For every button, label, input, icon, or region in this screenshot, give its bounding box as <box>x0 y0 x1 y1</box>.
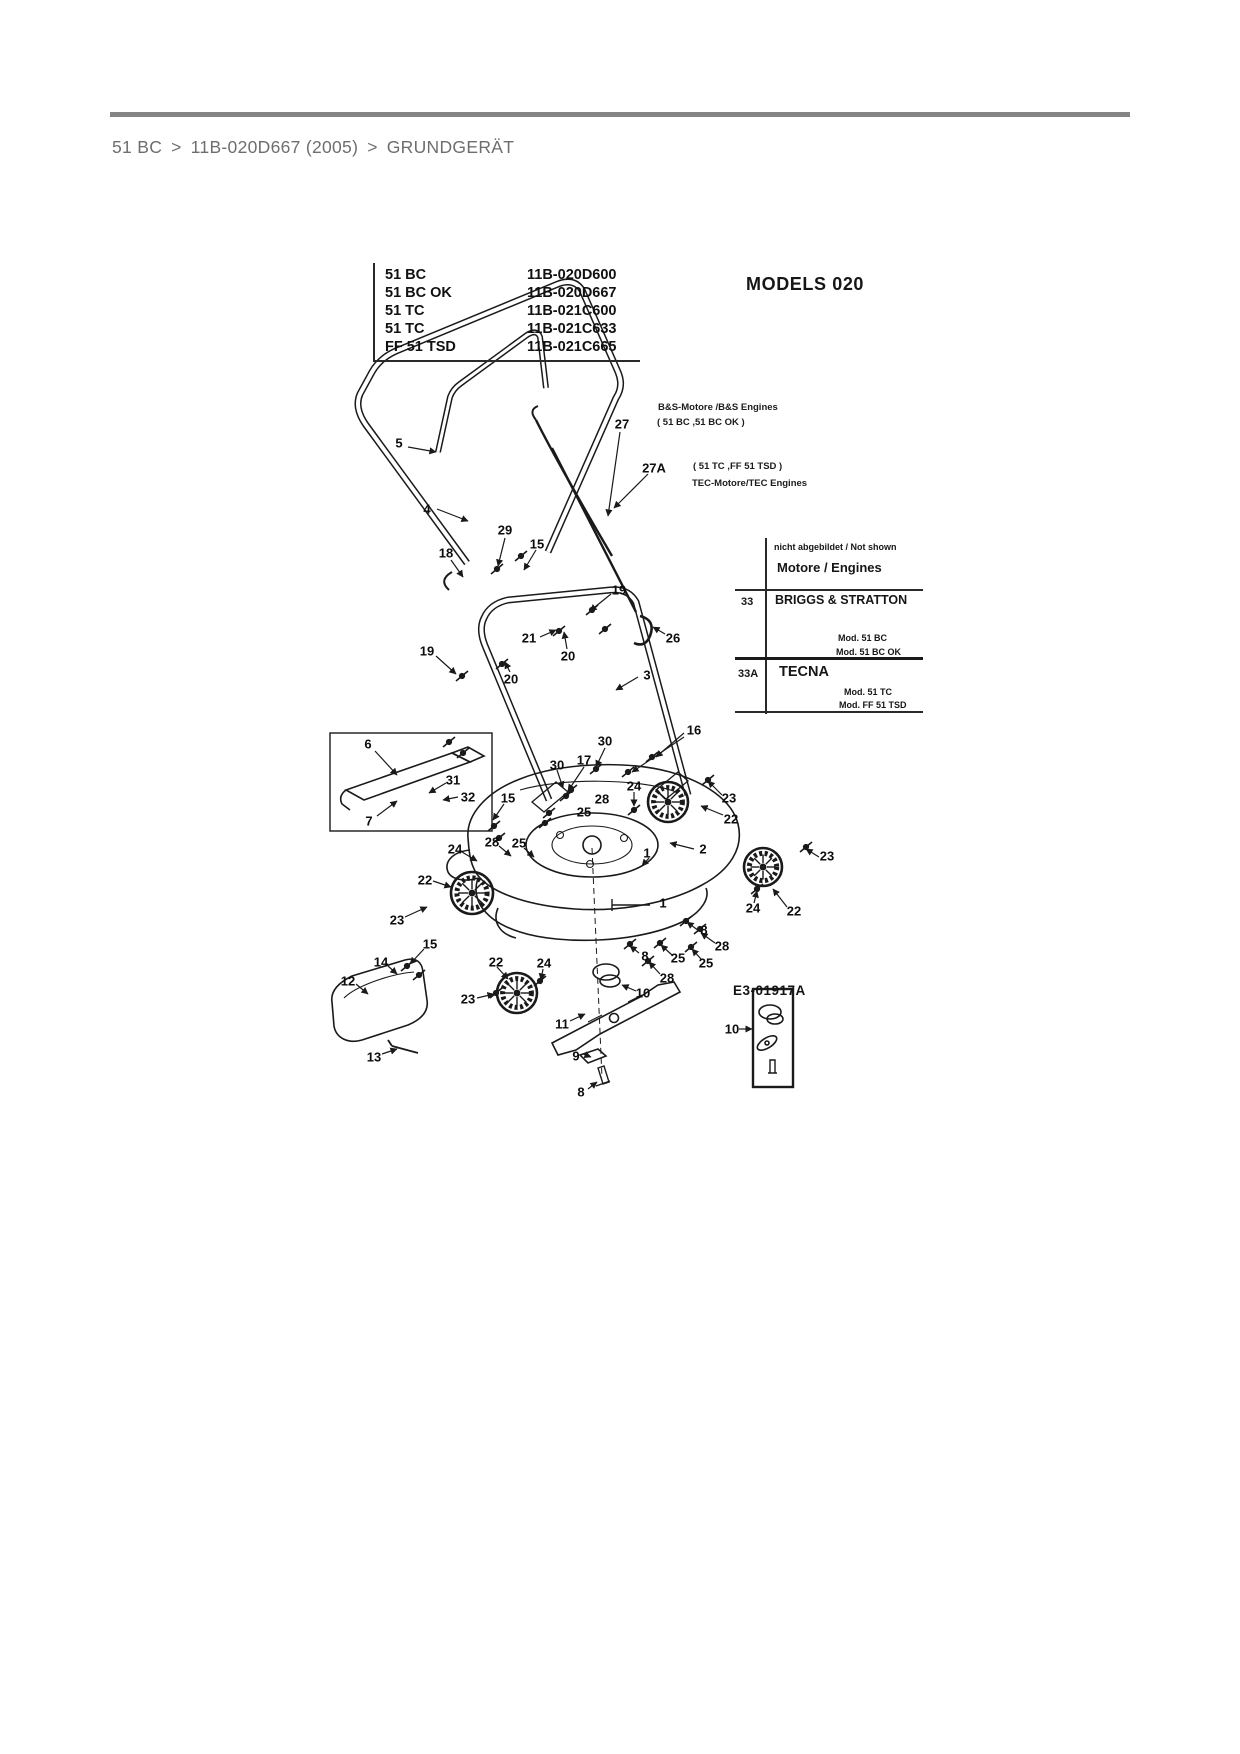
part-label-27a[interactable]: 27A <box>642 461 666 476</box>
part-label-15[interactable]: 15 <box>501 791 515 806</box>
part-label-3[interactable]: 3 <box>643 668 650 683</box>
engine-model-ff51tsd: Mod. FF 51 TSD <box>839 700 907 710</box>
part-label-5[interactable]: 5 <box>395 436 402 451</box>
engines-table: nicht abgebildet / Not shown Motore / En… <box>735 538 923 714</box>
part-label-19[interactable]: 19 <box>420 644 434 659</box>
engines-not-shown-note: nicht abgebildet / Not shown <box>774 542 897 552</box>
diagram-title: MODELS 020 <box>746 274 864 295</box>
part-label-24[interactable]: 24 <box>627 779 641 794</box>
model-name: 51 BC <box>375 266 527 284</box>
part-label-8[interactable]: 8 <box>641 949 648 964</box>
part-label-16[interactable]: 16 <box>687 723 701 738</box>
engine-ref-33a: 33A <box>738 668 758 680</box>
part-label-14[interactable]: 14 <box>374 955 388 970</box>
model-number: 11B-021C633 <box>527 320 637 338</box>
engine-note-tec-line2: TEC-Motore/TEC Engines <box>692 478 807 489</box>
part-label-23[interactable]: 23 <box>390 913 404 928</box>
part-label-1[interactable]: 1 <box>659 896 666 911</box>
part-label-25[interactable]: 25 <box>699 956 713 971</box>
engine-model-51bc: Mod. 51 BC <box>838 633 887 643</box>
part-label-21[interactable]: 21 <box>522 631 536 646</box>
part-label-25[interactable]: 25 <box>671 951 685 966</box>
model-row: 51 TC11B-021C600 <box>375 302 640 320</box>
model-name: 51 TC <box>375 302 527 320</box>
model-row: 51 BC11B-020D600 <box>375 266 640 284</box>
part-label-7[interactable]: 7 <box>365 814 372 829</box>
part-label-28[interactable]: 28 <box>660 971 674 986</box>
engine-note-bs-line1: B&S-Motore /B&S Engines <box>658 402 778 413</box>
part-label-11[interactable]: 11 <box>555 1017 569 1032</box>
engine-model-51bcok: Mod. 51 BC OK <box>836 647 901 657</box>
part-label-30[interactable]: 30 <box>598 734 612 749</box>
model-number: 11B-020D667 <box>527 284 637 302</box>
part-label-24[interactable]: 24 <box>448 842 462 857</box>
part-label-22[interactable]: 22 <box>787 904 801 919</box>
part-label-24[interactable]: 24 <box>537 956 551 971</box>
part-label-9[interactable]: 9 <box>572 1049 579 1064</box>
engines-table-rule-1 <box>735 589 923 591</box>
part-label-15[interactable]: 15 <box>530 537 544 552</box>
engine-ref-33: 33 <box>741 596 753 608</box>
part-label-31[interactable]: 31 <box>446 773 460 788</box>
part-label-8[interactable]: 8 <box>700 923 707 938</box>
part-label-19[interactable]: 19 <box>612 583 626 598</box>
part-label-6[interactable]: 6 <box>364 737 371 752</box>
part-label-20[interactable]: 20 <box>561 649 575 664</box>
part-label-10[interactable]: 10 <box>636 986 650 1001</box>
engines-table-rule-2 <box>735 657 923 660</box>
part-label-22[interactable]: 22 <box>418 873 432 888</box>
model-row: 51 TC11B-021C633 <box>375 320 640 338</box>
part-label-1[interactable]: 1 <box>643 846 650 861</box>
engine-note-tec-line1: ( 51 TC ,FF 51 TSD ) <box>693 461 782 472</box>
model-number: 11B-021C600 <box>527 302 637 320</box>
engines-table-rule-3 <box>735 711 923 713</box>
part-label-12[interactable]: 12 <box>341 974 355 989</box>
part-label-24[interactable]: 24 <box>746 901 760 916</box>
model-row: 51 BC OK11B-020D667 <box>375 284 640 302</box>
part-label-28[interactable]: 28 <box>595 792 609 807</box>
part-label-25[interactable]: 25 <box>512 836 526 851</box>
part-label-20[interactable]: 20 <box>504 672 518 687</box>
part-label-23[interactable]: 23 <box>461 992 475 1007</box>
model-number: 11B-020D600 <box>527 266 637 284</box>
part-label-8[interactable]: 8 <box>577 1085 584 1100</box>
model-name: 51 BC OK <box>375 284 527 302</box>
part-label-23[interactable]: 23 <box>820 849 834 864</box>
engines-table-header: Motore / Engines <box>777 560 882 575</box>
model-row: FF 51 TSD11B-021C665 <box>375 338 640 356</box>
part-label-17[interactable]: 17 <box>577 753 591 768</box>
part-label-4[interactable]: 4 <box>423 502 430 517</box>
drawing-number: E3-01917A <box>733 983 806 998</box>
engines-table-vline <box>765 538 767 714</box>
part-label-30[interactable]: 30 <box>550 758 564 773</box>
part-label-18[interactable]: 18 <box>439 546 453 561</box>
part-label-32[interactable]: 32 <box>461 790 475 805</box>
models-table: 51 BC11B-020D60051 BC OK11B-020D66751 TC… <box>373 263 640 362</box>
part-label-15[interactable]: 15 <box>423 937 437 952</box>
part-label-26[interactable]: 26 <box>666 631 680 646</box>
part-label-28[interactable]: 28 <box>715 939 729 954</box>
engine-note-bs-line2: ( 51 BC ,51 BC OK ) <box>657 417 745 428</box>
model-name: FF 51 TSD <box>375 338 527 356</box>
engine-name-briggs: BRIGGS & STRATTON <box>775 593 907 607</box>
model-number: 11B-021C665 <box>527 338 637 356</box>
engine-name-tecna: TECNA <box>779 664 829 680</box>
part-label-13[interactable]: 13 <box>367 1050 381 1065</box>
model-name: 51 TC <box>375 320 527 338</box>
part-label-29[interactable]: 29 <box>498 523 512 538</box>
part-label-28[interactable]: 28 <box>485 835 499 850</box>
part-label-2[interactable]: 2 <box>699 842 706 857</box>
part-label-22[interactable]: 22 <box>489 955 503 970</box>
part-label-27[interactable]: 27 <box>615 417 629 432</box>
part-label-25[interactable]: 25 <box>577 805 591 820</box>
engine-model-51tc: Mod. 51 TC <box>844 687 892 697</box>
part-label-10[interactable]: 10 <box>725 1022 739 1037</box>
part-label-23[interactable]: 23 <box>722 791 736 806</box>
part-label-22[interactable]: 22 <box>724 812 738 827</box>
